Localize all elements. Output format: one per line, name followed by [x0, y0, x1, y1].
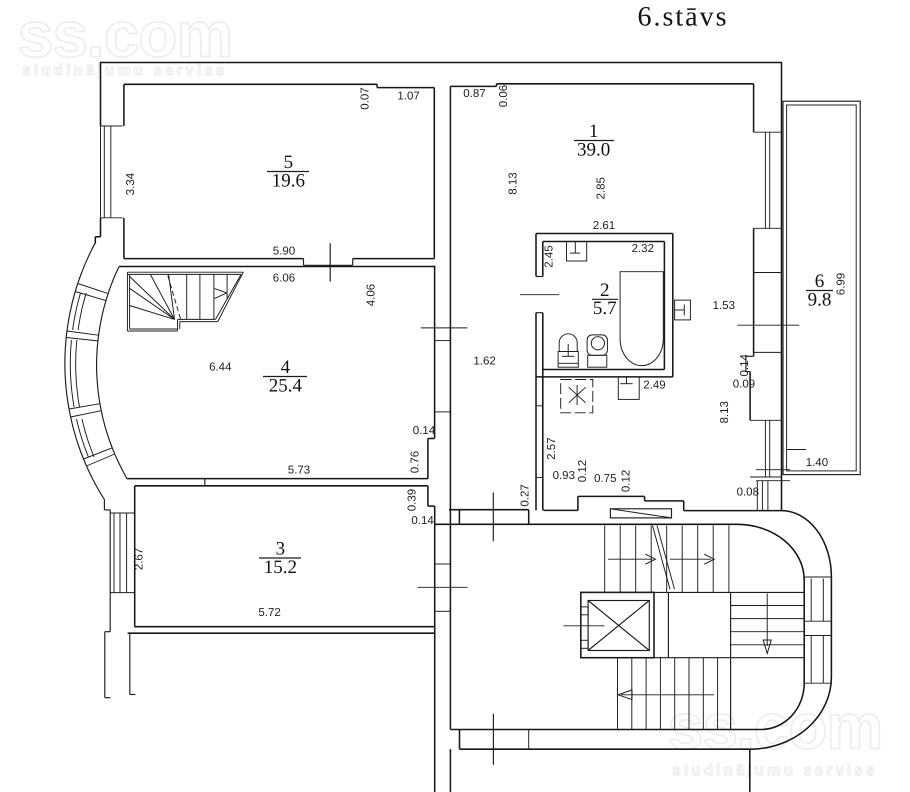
- svg-text:6.stāvs: 6.stāvs: [638, 2, 729, 33]
- svg-text:1.07: 1.07: [397, 91, 419, 103]
- svg-text:8.13: 8.13: [719, 401, 731, 423]
- svg-text:0.09: 0.09: [733, 378, 755, 390]
- svg-text:5.7: 5.7: [593, 298, 617, 319]
- svg-text:2.45: 2.45: [544, 245, 556, 267]
- svg-text:0.12: 0.12: [577, 460, 589, 482]
- svg-text:2.85: 2.85: [596, 177, 608, 199]
- svg-text:39.0: 39.0: [577, 140, 610, 161]
- svg-text:9.8: 9.8: [808, 290, 832, 311]
- svg-text:2.49: 2.49: [643, 380, 665, 392]
- svg-text:0.27: 0.27: [519, 484, 531, 506]
- svg-text:sludinājumu serviss: sludinājumu serviss: [22, 62, 227, 79]
- svg-text:0.12: 0.12: [621, 470, 633, 492]
- svg-text:6.44: 6.44: [209, 362, 232, 374]
- svg-text:0.76: 0.76: [409, 451, 421, 473]
- svg-text:2.61: 2.61: [593, 220, 615, 232]
- svg-text:sludinājumu serviss: sludinājumu serviss: [672, 762, 877, 779]
- svg-text:0.06: 0.06: [498, 85, 510, 107]
- svg-text:2.67: 2.67: [134, 548, 146, 570]
- svg-text:0.87: 0.87: [463, 88, 485, 100]
- svg-text:1.53: 1.53: [713, 300, 735, 312]
- svg-text:5.73: 5.73: [288, 465, 310, 477]
- svg-text:0.93: 0.93: [553, 470, 575, 482]
- svg-text:25.4: 25.4: [269, 376, 303, 397]
- svg-text:1.62: 1.62: [473, 355, 495, 367]
- svg-text:0.14: 0.14: [739, 354, 751, 377]
- svg-text:5.90: 5.90: [273, 246, 295, 258]
- svg-text:2.32: 2.32: [632, 243, 654, 255]
- svg-text:0.08: 0.08: [737, 487, 759, 499]
- svg-text:0.14: 0.14: [411, 515, 434, 527]
- svg-text:0.39: 0.39: [407, 489, 419, 511]
- svg-text:3.34: 3.34: [125, 172, 137, 195]
- svg-text:15.2: 15.2: [264, 557, 297, 578]
- svg-text:5.72: 5.72: [258, 607, 280, 619]
- svg-text:6.06: 6.06: [273, 273, 295, 285]
- svg-text:0.14: 0.14: [413, 425, 436, 437]
- svg-text:4.06: 4.06: [366, 284, 378, 306]
- svg-text:2.57: 2.57: [546, 438, 558, 460]
- svg-text:ss.com: ss.com: [18, 0, 233, 71]
- svg-text:6.99: 6.99: [835, 273, 847, 295]
- svg-text:19.6: 19.6: [272, 171, 305, 192]
- svg-text:8.13: 8.13: [507, 172, 519, 194]
- svg-text:1.40: 1.40: [806, 457, 828, 469]
- svg-text:0.07: 0.07: [359, 87, 371, 109]
- svg-text:0.75: 0.75: [594, 473, 616, 485]
